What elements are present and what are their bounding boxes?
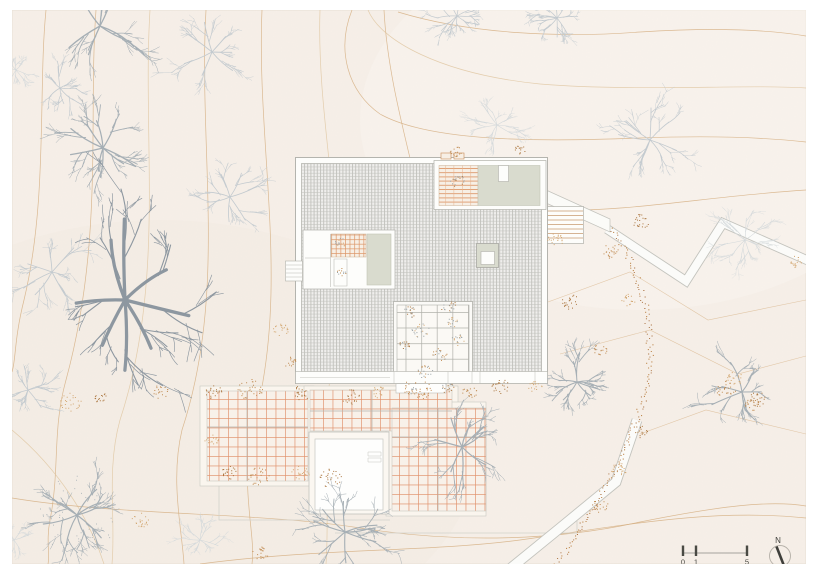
north-label: N [775,536,781,545]
pool-basin [315,439,383,510]
courtyard-south-garden [394,302,473,380]
south-planter [396,383,446,393]
scale-tick [695,546,697,557]
patio-paving [367,234,391,285]
timber-deck [331,234,366,257]
skylight-opening [481,252,495,265]
pergola-bay-west [207,391,308,481]
scale-label-5: 5 [745,558,749,567]
scale-tick [682,546,684,557]
pergola-bay-east [392,408,486,511]
scale-tick [746,546,748,557]
west-stair [286,261,303,281]
pool [309,432,389,514]
courtyard-northeast [434,161,546,210]
patio-bench [499,166,509,182]
skylight [477,244,499,268]
planter-grid [397,305,469,376]
timber-deck [439,166,478,206]
site-plan-page: 0 1 5 N [0,0,818,578]
roof-vent [441,153,451,159]
site-plan-drawing: 0 1 5 N [0,0,818,578]
scale-label-1: 1 [694,558,698,567]
scale-label-0: 0 [681,558,685,567]
courtyard-west [303,230,395,289]
patio-paving [478,166,540,206]
roof-vent [454,153,464,159]
